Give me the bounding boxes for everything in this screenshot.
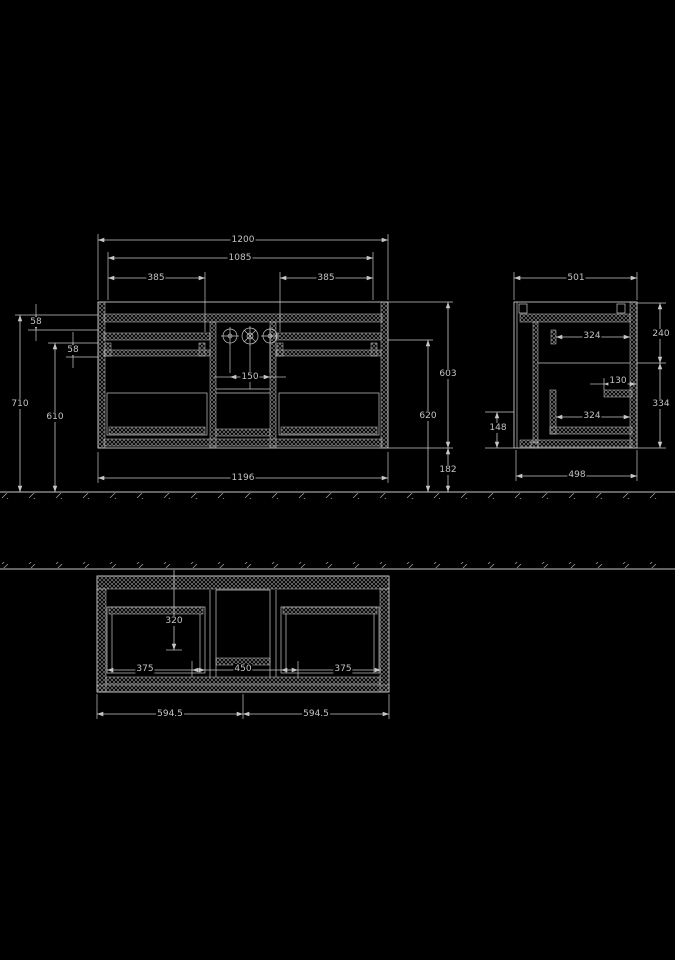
hinge-plate-back [617,304,625,313]
side-upper-inner-depth-dim: 324 [582,331,601,341]
plan-half-width-right-dim: 594.5 [302,709,330,719]
plan-left-drawer-width-dim: 375 [135,664,154,674]
front-cabinet-height-dim: 603 [438,369,457,379]
side-view [485,272,666,481]
plan-half-width-left-dim: 594.5 [156,709,184,719]
plan-left-drawer [107,607,205,673]
plan-dimension-lines [97,570,389,719]
front-height-710-dim: 710 [10,399,29,409]
front-top-offset-b-dim: 58 [66,345,79,355]
plan-center-width-dim: 450 [233,664,252,674]
plan-cabinet-outline [97,576,389,692]
plan-right-drawer-width-dim: 375 [333,664,352,674]
front-overall-width-dim: 1200 [231,235,256,245]
side-lower-height-dim: 334 [651,399,670,409]
wall-line [0,562,675,569]
side-dimension-lines [485,272,666,481]
plan-view [97,570,389,719]
tap-hole-spacing-dim: 150 [240,372,259,382]
drawing-lines [0,0,675,960]
hinge-plate-front [519,304,527,313]
front-view [15,234,453,492]
front-clearance-dim: 182 [438,465,457,475]
front-inner-width-dim: 1085 [228,253,253,263]
side-upper-height-dim: 240 [651,329,670,339]
front-right-drawer-width-dim: 385 [316,273,335,283]
front-bottom-width-dim: 1196 [231,473,256,483]
front-height-610-dim: 610 [45,412,64,422]
plan-depth-dim: 320 [164,616,183,626]
technical-drawing: 1200 1085 385 385 58 58 710 610 603 620 … [0,0,675,960]
side-lower-inner-depth-dim: 324 [582,411,601,421]
side-top-depth-dim: 501 [566,273,585,283]
side-bottom-depth-dim: 498 [567,470,586,480]
front-left-drawer-width-dim: 385 [146,273,165,283]
ground-line [0,492,675,499]
front-height-620-dim: 620 [418,411,437,421]
plan-right-drawer [281,607,379,673]
side-cabinet-outline [514,302,637,448]
front-top-offset-a-dim: 58 [29,317,42,327]
side-cutout-depth-dim: 130 [608,376,627,386]
side-front-height-dim: 148 [488,423,507,433]
tap-holes [221,326,279,346]
